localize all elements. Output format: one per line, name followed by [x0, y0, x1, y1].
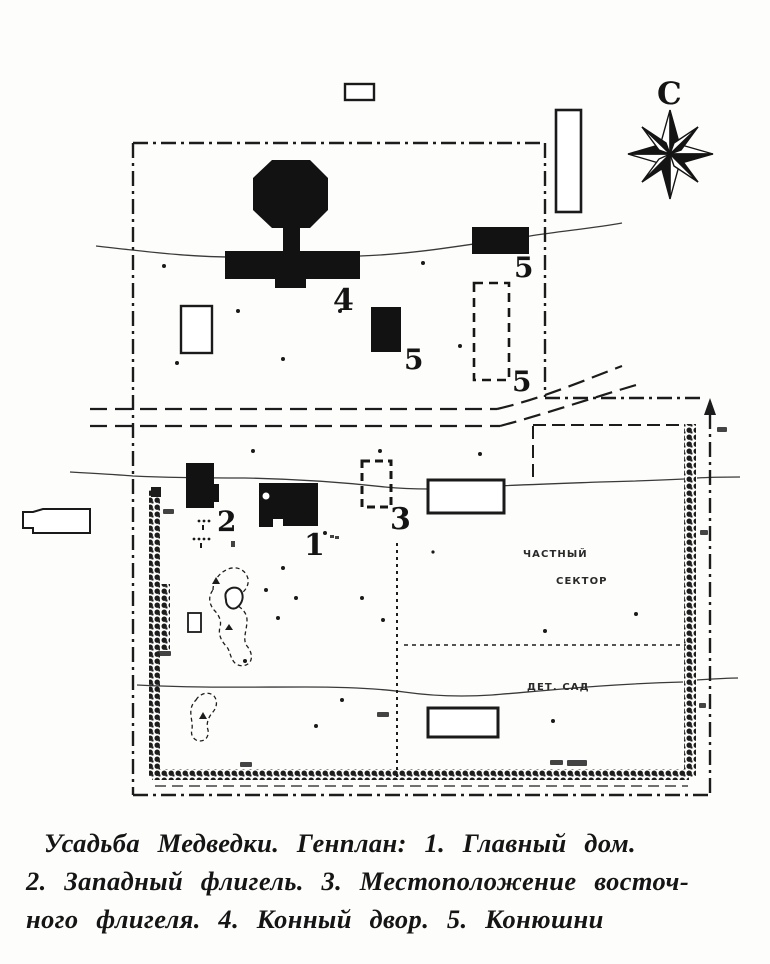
label-east-wing-site: 3: [390, 502, 411, 537]
caption-line-1: Усадьба Медведки. Генплан: 1. Главный до…: [26, 824, 746, 862]
label-private-sector-line1: ЧАСТНЫЙ: [523, 547, 588, 560]
label-stable-c: 5: [512, 365, 531, 398]
stable-c-dashed-outline: [474, 283, 509, 380]
west-wing-building: [186, 463, 219, 508]
estate-boundary-dashdot: [133, 143, 710, 795]
label-private-sector-line2: СЕКТОР: [556, 576, 608, 587]
stable-b-building: [371, 307, 401, 352]
compass-rose-icon: [628, 110, 713, 199]
east-wing-site-dashed-outline: [362, 461, 391, 507]
road-dashed-lines: [90, 366, 636, 426]
garden-tick-rows: [193, 520, 211, 548]
label-west-wing: 2: [217, 505, 236, 538]
label-horse-yard: 4: [333, 283, 354, 318]
caption-line-2: 2. Западный флигель. 3. Местоположение в…: [26, 862, 746, 900]
terrain-contour-lines: [70, 223, 740, 696]
caption-line-3: ного флигеля. 4. Конный двор. 5. Конюшни: [26, 900, 746, 938]
label-main-house: 1: [304, 528, 325, 563]
scanned-plan-page: 4 5 5 5 2 1 3 ЧАСТНЫЙ СЕКТОР ДЕТ. САД С …: [0, 0, 770, 964]
main-house-building: [259, 483, 318, 527]
horse-yard-building: [225, 160, 360, 288]
compass-north-label: С: [657, 76, 682, 112]
label-kindergarten: ДЕТ. САД: [527, 682, 590, 693]
label-stable-b: 5: [404, 343, 423, 376]
plan-caption: Усадьба Медведки. Генплан: 1. Главный до…: [26, 824, 746, 938]
estate-general-plan-map: 4 5 5 5 2 1 3 ЧАСТНЫЙ СЕКТОР ДЕТ. САД С: [0, 0, 770, 815]
label-stable-a: 5: [514, 251, 533, 284]
boundary-arrow-marker: [704, 398, 716, 415]
stable-a-building: [472, 227, 529, 254]
pond-island-contour: [225, 588, 242, 609]
